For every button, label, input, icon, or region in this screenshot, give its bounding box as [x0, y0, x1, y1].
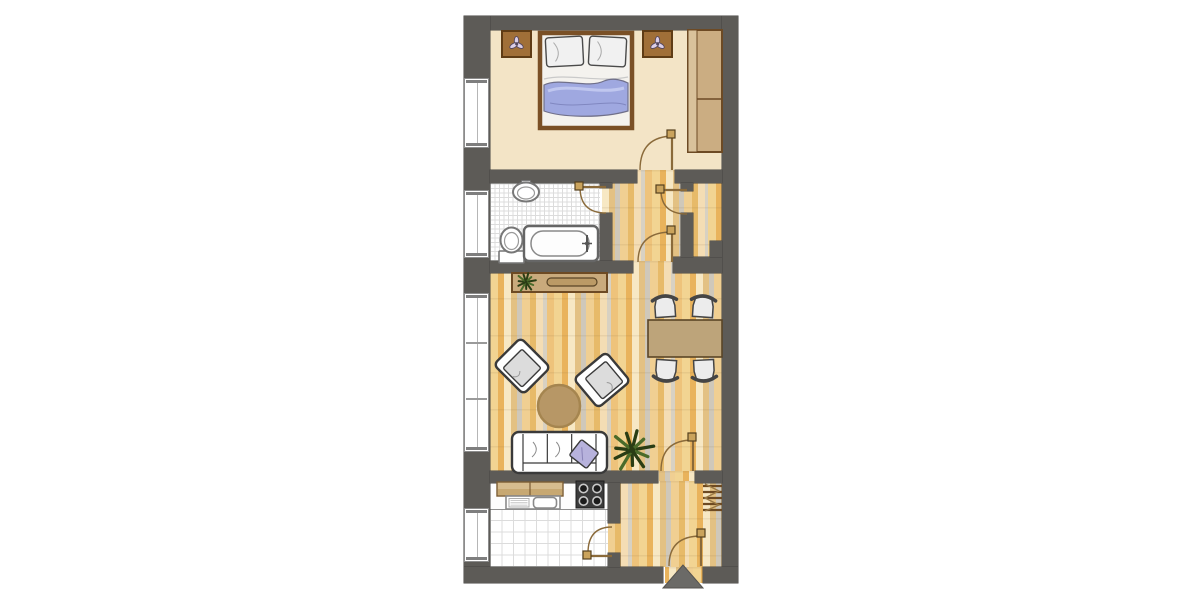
- kitchen-window: [464, 508, 489, 562]
- entrance-hall-floor: [608, 481, 722, 567]
- wall-kitchen-right-top: [608, 483, 620, 523]
- bedroom-window: [464, 78, 489, 148]
- bedroom-window-frame: [466, 80, 487, 83]
- wall-bottom-right: [703, 567, 738, 583]
- wall-storage-left: [681, 213, 693, 257]
- kitchen-counter-strip: [490, 481, 608, 510]
- bathroom-window: [464, 190, 489, 258]
- wall-bedroom-divider-right: [675, 170, 722, 183]
- bedroom-window-frame: [477, 80, 478, 146]
- kitchen-window-frame: [466, 510, 487, 513]
- living-room-window-frame: [466, 342, 487, 344]
- wall-living-bottom-right: [695, 471, 722, 483]
- bathroom-window-frame: [466, 253, 487, 256]
- bathroom-window-frame: [477, 192, 478, 256]
- bathroom-floor: [490, 183, 600, 261]
- bedroom-floor: [490, 30, 722, 170]
- bedroom-window-frame: [466, 143, 487, 146]
- wall-bottom-left: [464, 567, 663, 583]
- kitchen-window-frame: [477, 510, 478, 560]
- wall-right: [722, 16, 738, 583]
- wall-living-bottom-left: [490, 471, 658, 483]
- bathroom-window-frame: [466, 192, 487, 195]
- floor-plan: [0, 0, 1200, 600]
- living-room-floor: [490, 261, 722, 471]
- wall-storage-notch: [710, 241, 722, 257]
- kitchen-window-frame: [466, 557, 487, 560]
- living-room-window-frame: [477, 295, 478, 450]
- living-room-window-frame: [466, 295, 487, 298]
- wall-bedroom-divider-left: [490, 170, 637, 183]
- wall-bathroom-stub: [600, 183, 612, 188]
- wall-kitchen-right-bottom: [608, 553, 620, 567]
- wall-bathroom-right: [600, 213, 612, 261]
- wall-bathroom-bottom: [490, 261, 633, 273]
- living-room-window-frame: [466, 447, 487, 450]
- wall-storage-stub: [681, 183, 693, 191]
- wall-hall-bottom-right: [673, 257, 722, 273]
- living-room-window: [464, 293, 489, 452]
- wall-top: [464, 16, 738, 30]
- entrance-threshold: [665, 567, 703, 583]
- living-room-window-frame: [466, 398, 487, 400]
- kitchen-floor: [490, 510, 608, 567]
